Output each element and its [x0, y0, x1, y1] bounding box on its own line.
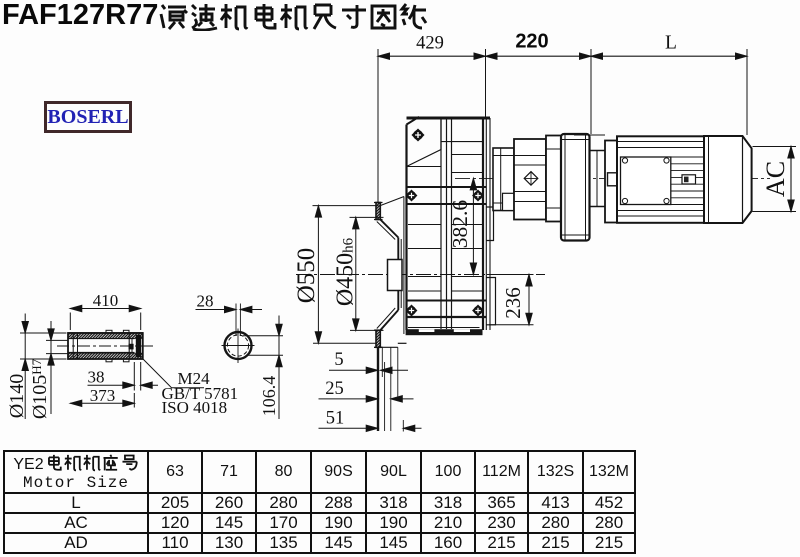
svg-text:AC: AC [761, 161, 790, 197]
svg-text:106.4: 106.4 [259, 376, 279, 417]
svg-text:Ø450h6: Ø450h6 [333, 237, 359, 306]
svg-text:236: 236 [501, 287, 525, 319]
svg-text:5: 5 [334, 350, 343, 370]
svg-text:373: 373 [90, 386, 116, 405]
svg-text:382.6: 382.6 [448, 200, 472, 249]
svg-text:51: 51 [326, 408, 345, 428]
svg-text:Ø105H7: Ø105H7 [29, 358, 51, 419]
svg-text:25: 25 [325, 379, 344, 399]
svg-text:429: 429 [416, 34, 444, 54]
svg-text:Ø140: Ø140 [6, 374, 28, 418]
svg-text:220: 220 [515, 31, 548, 53]
svg-text:410: 410 [93, 291, 119, 310]
svg-text:Ø550: Ø550 [293, 248, 320, 304]
svg-text:ISO 4018: ISO 4018 [162, 398, 228, 417]
svg-text:28: 28 [197, 292, 214, 311]
svg-text:L: L [665, 33, 677, 54]
svg-text:38: 38 [88, 368, 105, 387]
